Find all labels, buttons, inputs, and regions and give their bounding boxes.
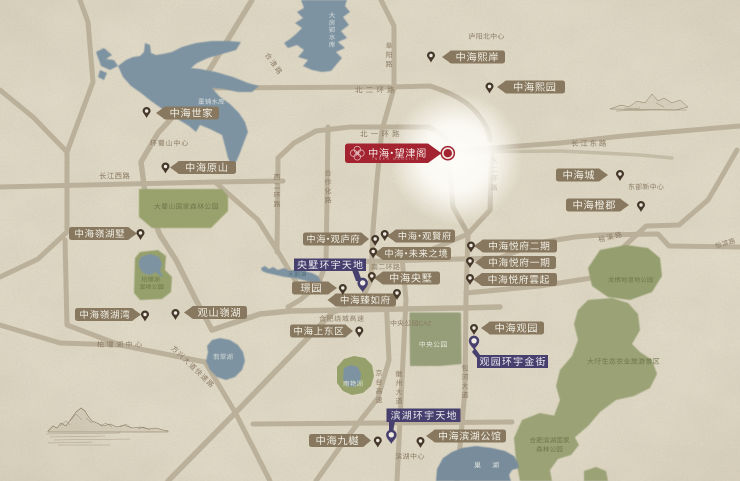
svg-text:INNER MANSION: INNER MANSION [372,157,419,161]
svg-text:CAZ: CAZ [419,321,432,328]
